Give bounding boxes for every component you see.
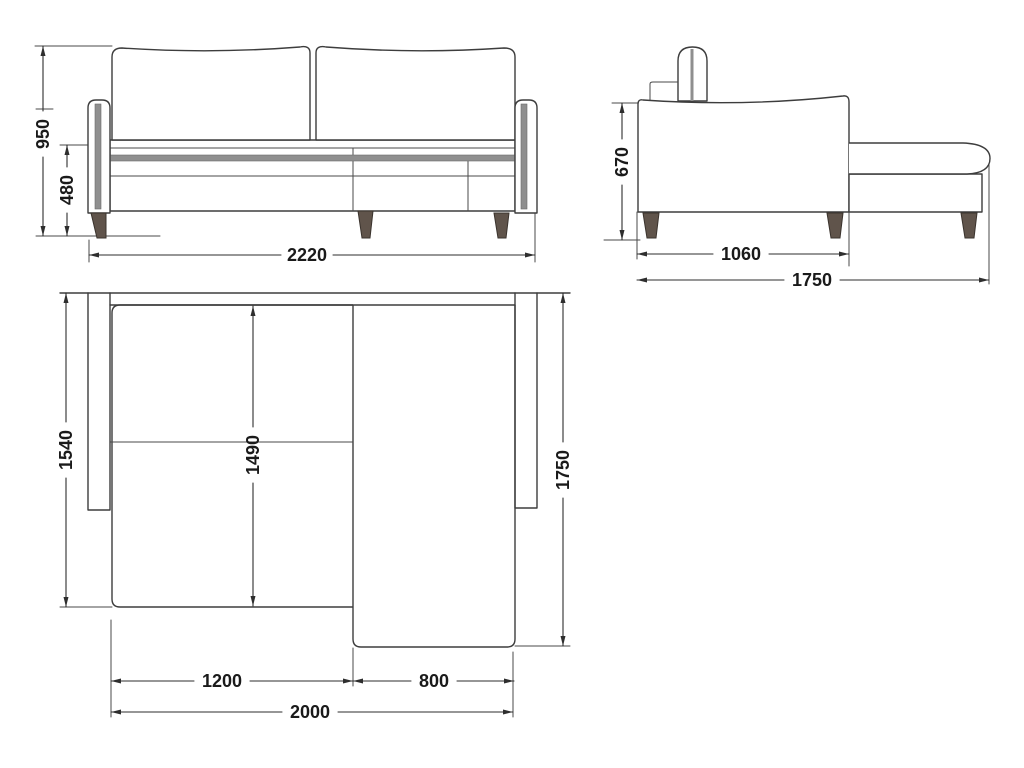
dim-front-overall-width: 2220	[89, 245, 535, 265]
dim-front-seat-height: 480	[57, 145, 77, 236]
dim-plan-total-length: 2000	[111, 702, 513, 722]
side-leg-chaise	[961, 213, 977, 238]
dim-label-2220: 2220	[287, 245, 327, 265]
plan-armrest-left	[88, 293, 110, 510]
front-back-cushion-left	[112, 47, 310, 140]
dim-label-2000: 2000	[290, 702, 330, 722]
sofa-technical-drawing: 950 480 2220	[0, 0, 1024, 768]
dim-label-670: 670	[612, 147, 632, 177]
front-back-cushion-right	[316, 47, 515, 140]
side-back-cushion-edge	[650, 82, 678, 101]
dim-label-1750-side: 1750	[792, 270, 832, 290]
side-leg-back	[827, 213, 843, 238]
dim-side-body-depth: 1060	[637, 244, 849, 264]
dim-plan-section-width: 1200	[111, 671, 353, 691]
dim-side-back-height: 670	[612, 103, 632, 240]
dim-label-1490: 1490	[243, 435, 263, 475]
dim-label-480: 480	[57, 175, 77, 205]
dim-side-total-depth: 1750	[637, 270, 989, 290]
side-view: 670 1060 1750	[604, 47, 990, 290]
dim-front-overall-height: 950	[33, 46, 53, 236]
front-armrest-right-piping	[521, 104, 527, 209]
front-leg-middle	[358, 211, 373, 238]
front-armrest-left-piping	[95, 104, 101, 209]
plan-seat-section	[112, 305, 353, 607]
side-chaise-body	[849, 174, 982, 212]
front-leg-left	[91, 213, 106, 238]
dim-label-1540: 1540	[56, 430, 76, 470]
dim-plan-right-depth: 1750	[553, 293, 573, 646]
sofa-technical-drawing-page: 950 480 2220	[0, 0, 1024, 768]
dim-label-1750-plan: 1750	[553, 450, 573, 490]
side-chaise-roll	[849, 143, 990, 174]
dim-label-800: 800	[419, 671, 449, 691]
dim-label-1060: 1060	[721, 244, 761, 264]
top-view: 1540 1490 1750 1200 800 2	[56, 293, 573, 722]
front-accent-band	[110, 155, 515, 161]
side-leg-front	[643, 213, 659, 238]
front-view: 950 480 2220	[33, 46, 537, 265]
dim-label-950: 950	[33, 119, 53, 149]
front-leg-right	[494, 213, 509, 238]
dim-plan-chaise-width: 800	[353, 671, 514, 691]
plan-chaise-section	[353, 305, 515, 647]
dim-label-1200: 1200	[202, 671, 242, 691]
side-main-body	[638, 96, 849, 212]
plan-armrest-right	[515, 293, 537, 508]
dim-plan-left-depth: 1540	[56, 293, 76, 607]
